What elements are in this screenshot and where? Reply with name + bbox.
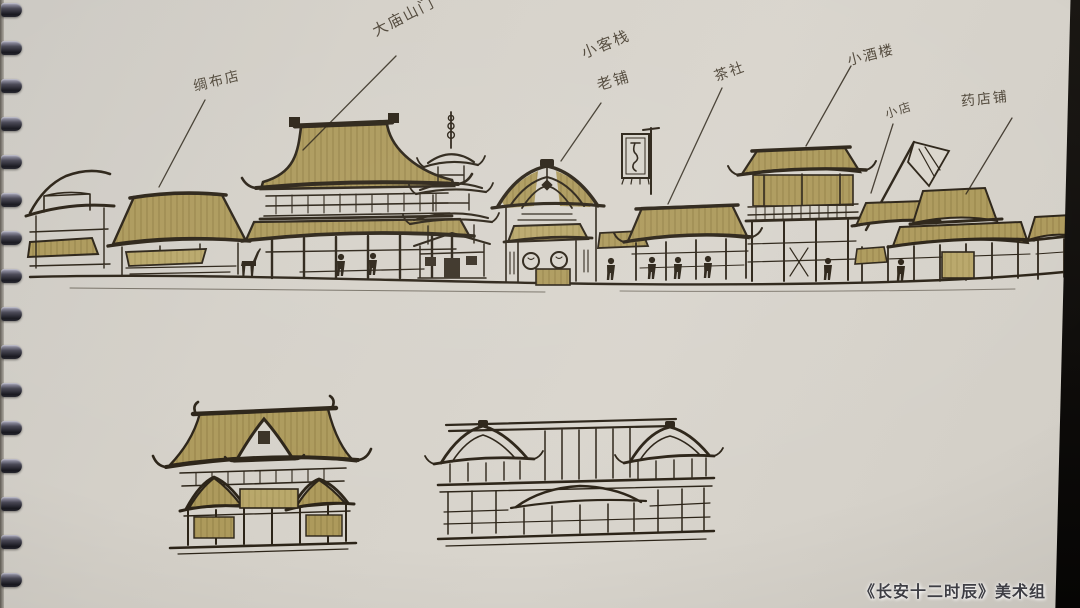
binding-ring: [1, 307, 22, 321]
sketch-drawing: [0, 0, 1080, 608]
gate-towers-line-sketch: [425, 419, 723, 546]
binding-ring: [1, 193, 22, 207]
binding-ring: [1, 269, 22, 283]
binding-ring: [1, 231, 22, 245]
right-shops: [852, 142, 1080, 281]
binding-ring: [1, 155, 22, 169]
deer-figure: [241, 248, 261, 276]
teahouse-building: [614, 205, 762, 280]
wine-tower-building: [728, 147, 876, 281]
watermark-caption: 《长安十二时辰》美术组: [859, 578, 1046, 602]
binding-ring: [1, 497, 22, 511]
binding-ring: [1, 79, 22, 93]
binding-ring: [1, 345, 22, 359]
binding-ring: [1, 117, 22, 131]
left-pavilion: [26, 171, 114, 268]
binding-ring: [1, 421, 22, 435]
sketchbook-photo: 绸布店 大庙山门 小客栈 老铺 茶社 小酒楼 小店 药店铺 《长安十二时辰》美术…: [0, 0, 1080, 608]
spiral-binding: [0, 0, 26, 608]
binding-ring: [1, 383, 22, 397]
pavilion-colored-sketch: [153, 396, 371, 554]
shop-banner: [622, 128, 659, 194]
binding-ring: [1, 535, 22, 549]
silk-shop-building: [108, 193, 261, 276]
binding-ring: [1, 573, 22, 587]
binding-ring: [1, 459, 22, 473]
binding-ring: [1, 41, 22, 55]
binding-ring: [1, 3, 22, 17]
